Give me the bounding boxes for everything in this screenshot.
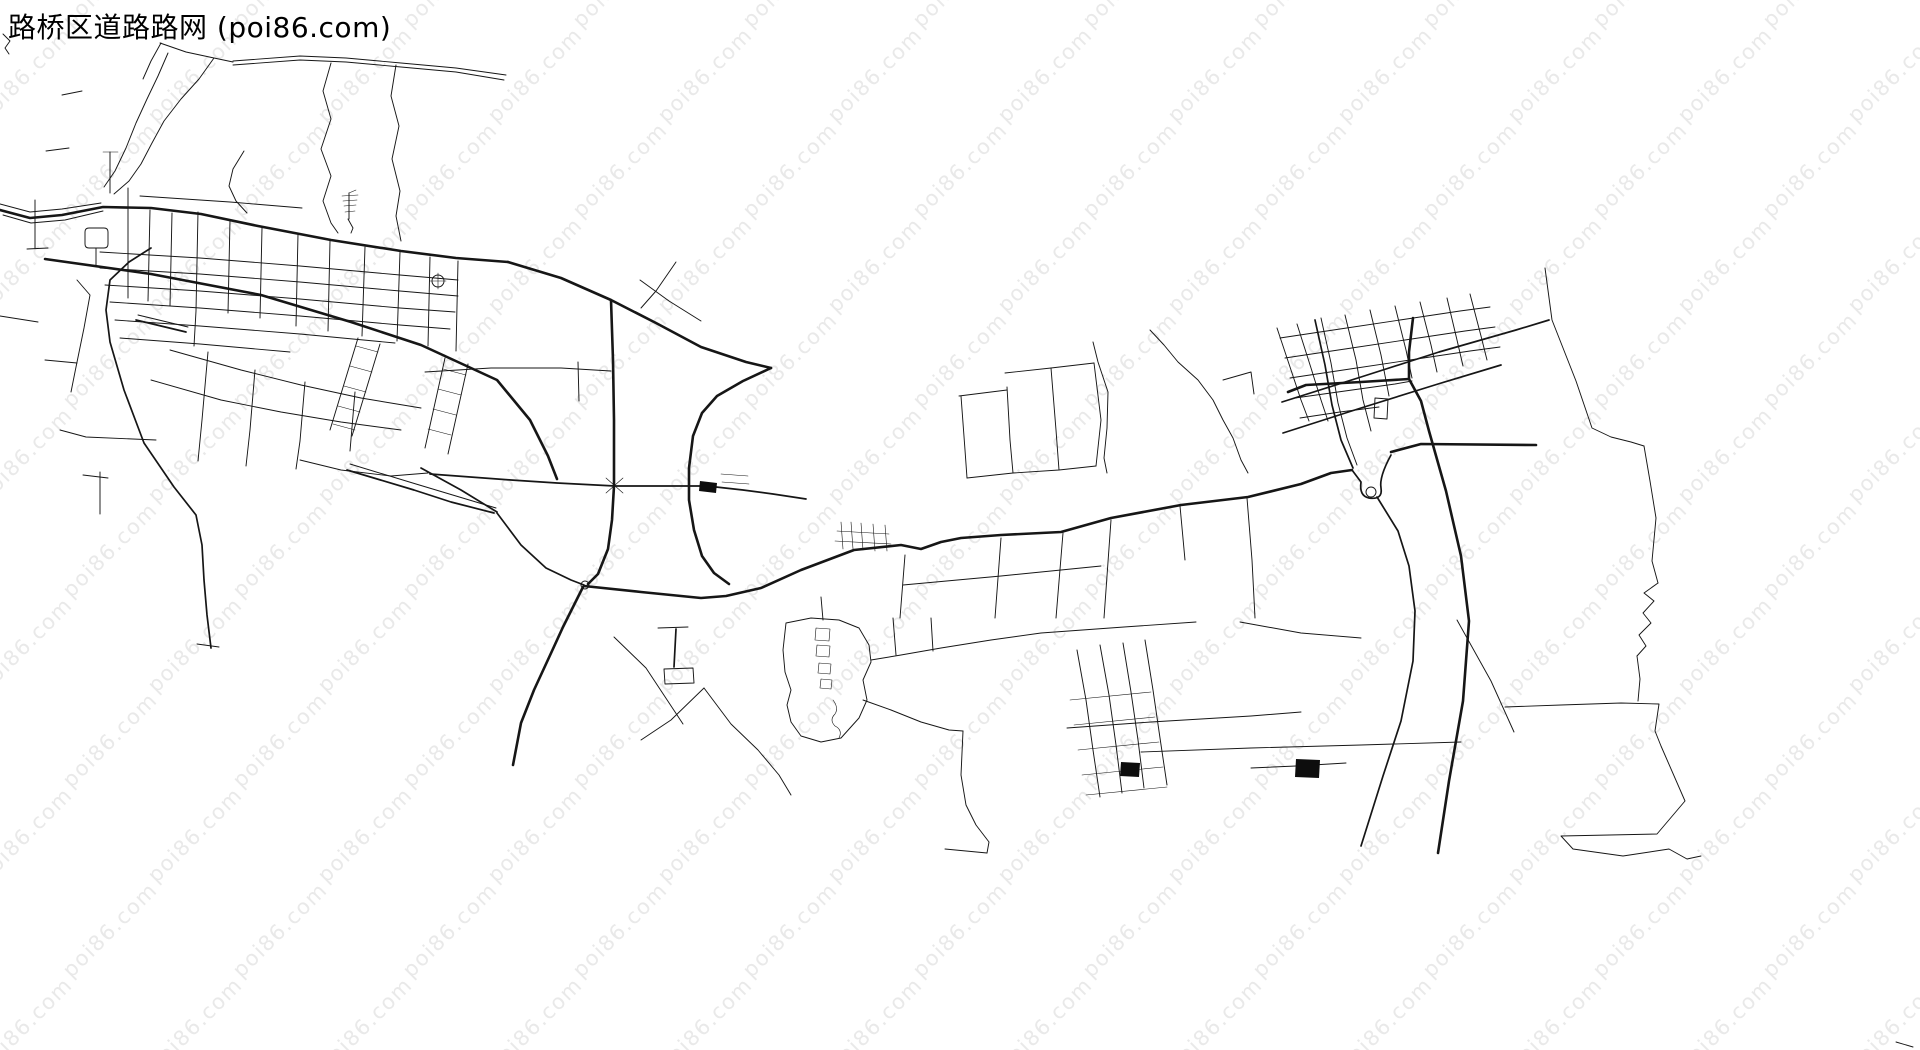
road [1145, 640, 1167, 785]
road [1094, 363, 1101, 466]
road [350, 392, 355, 451]
road [430, 474, 806, 499]
building-blocks-group [699, 481, 1320, 778]
road [349, 190, 356, 193]
road [343, 200, 357, 201]
road [391, 65, 401, 241]
road [296, 234, 298, 326]
road [945, 849, 987, 853]
road [783, 618, 871, 742]
building-block [1120, 762, 1140, 777]
map-page: poi86.compoi86.compoi86.compoi86.compoi8… [0, 0, 1920, 1050]
road [228, 220, 230, 313]
road [350, 366, 372, 372]
road [961, 731, 989, 853]
road [321, 63, 338, 233]
road [1013, 466, 1096, 473]
road [105, 285, 455, 312]
road [1297, 324, 1328, 421]
page-title: 路桥区道路路网 (poi86.com) [8, 6, 391, 46]
road [356, 346, 378, 352]
road [614, 637, 683, 724]
road [1247, 498, 1255, 618]
road [143, 43, 161, 79]
road [1896, 1042, 1913, 1047]
road [1345, 315, 1371, 431]
road [841, 522, 843, 549]
road [1104, 520, 1111, 618]
road [959, 390, 1007, 396]
road [233, 60, 504, 80]
road [1007, 387, 1013, 473]
road [348, 219, 353, 233]
road [1078, 742, 1159, 750]
road [1409, 318, 1469, 853]
road [497, 513, 584, 585]
road [1637, 656, 1640, 701]
road [1150, 330, 1248, 473]
building-block [1295, 759, 1320, 778]
road [640, 280, 701, 321]
road [1283, 365, 1501, 433]
road [1505, 703, 1701, 859]
road [863, 700, 963, 731]
road [1100, 645, 1122, 793]
building-block [699, 481, 717, 493]
road [448, 364, 468, 454]
road [46, 148, 69, 151]
road [861, 523, 863, 550]
road [1352, 455, 1391, 498]
road [664, 668, 694, 684]
road [903, 566, 1101, 585]
road [344, 386, 366, 392]
road [120, 338, 290, 352]
road [296, 382, 305, 469]
road [62, 91, 82, 95]
road [352, 344, 380, 436]
map-symbols-group [432, 275, 1376, 589]
road [328, 241, 330, 331]
road [438, 389, 461, 395]
road [641, 688, 704, 740]
road [578, 362, 579, 401]
road [1545, 268, 1644, 446]
road [513, 587, 583, 765]
road [818, 663, 831, 674]
road [1074, 717, 1155, 725]
road [821, 597, 823, 620]
road [140, 196, 302, 208]
road [27, 248, 48, 249]
road [71, 280, 90, 392]
road [0, 316, 38, 322]
road [100, 268, 458, 296]
road [1240, 622, 1361, 638]
roundabout-symbol [1366, 487, 1376, 497]
road [456, 261, 458, 351]
road [722, 482, 749, 484]
road [350, 464, 496, 508]
road [114, 58, 214, 194]
road [104, 53, 168, 187]
road [1361, 497, 1415, 846]
road [995, 538, 1001, 618]
road [1141, 742, 1461, 752]
road [1180, 506, 1185, 560]
road [0, 207, 508, 262]
road [151, 380, 401, 430]
road [1644, 446, 1658, 583]
road [820, 679, 832, 689]
road [837, 531, 889, 534]
road [110, 302, 450, 329]
road [674, 629, 676, 667]
road [197, 644, 219, 647]
road [931, 618, 933, 651]
road [1093, 342, 1108, 473]
road [658, 627, 688, 628]
road [260, 228, 262, 318]
road [246, 370, 255, 466]
road [588, 300, 614, 584]
road [362, 247, 365, 336]
road [961, 396, 967, 478]
road [1051, 368, 1059, 470]
road [428, 257, 430, 346]
road [1056, 533, 1063, 618]
road [397, 252, 400, 341]
road [1637, 583, 1658, 656]
road [330, 338, 358, 430]
road-network-map [0, 0, 1920, 1050]
road [229, 151, 247, 213]
road [816, 645, 830, 657]
road [835, 541, 891, 544]
road [138, 315, 188, 327]
road [967, 473, 1013, 478]
road [508, 262, 771, 368]
road [198, 352, 208, 461]
road [233, 56, 506, 75]
road [900, 555, 905, 618]
road [1277, 328, 1309, 421]
road [704, 688, 791, 795]
road [170, 213, 172, 306]
road [689, 368, 771, 584]
road [1070, 692, 1151, 700]
road [45, 360, 77, 363]
road [1086, 787, 1167, 795]
road [1005, 363, 1094, 373]
road [338, 406, 360, 412]
road [433, 409, 456, 415]
roads-group [0, 34, 1913, 1047]
road [342, 195, 358, 196]
road [345, 211, 355, 212]
road [428, 429, 451, 435]
road [344, 205, 356, 206]
road [721, 474, 748, 476]
road [1280, 307, 1490, 338]
road [85, 228, 108, 248]
road [83, 475, 108, 478]
road [1223, 372, 1254, 394]
road [832, 700, 840, 738]
road [1391, 444, 1536, 452]
road [851, 522, 853, 549]
road [815, 628, 830, 641]
road [1067, 712, 1301, 728]
road [1285, 327, 1495, 358]
road [893, 618, 896, 655]
